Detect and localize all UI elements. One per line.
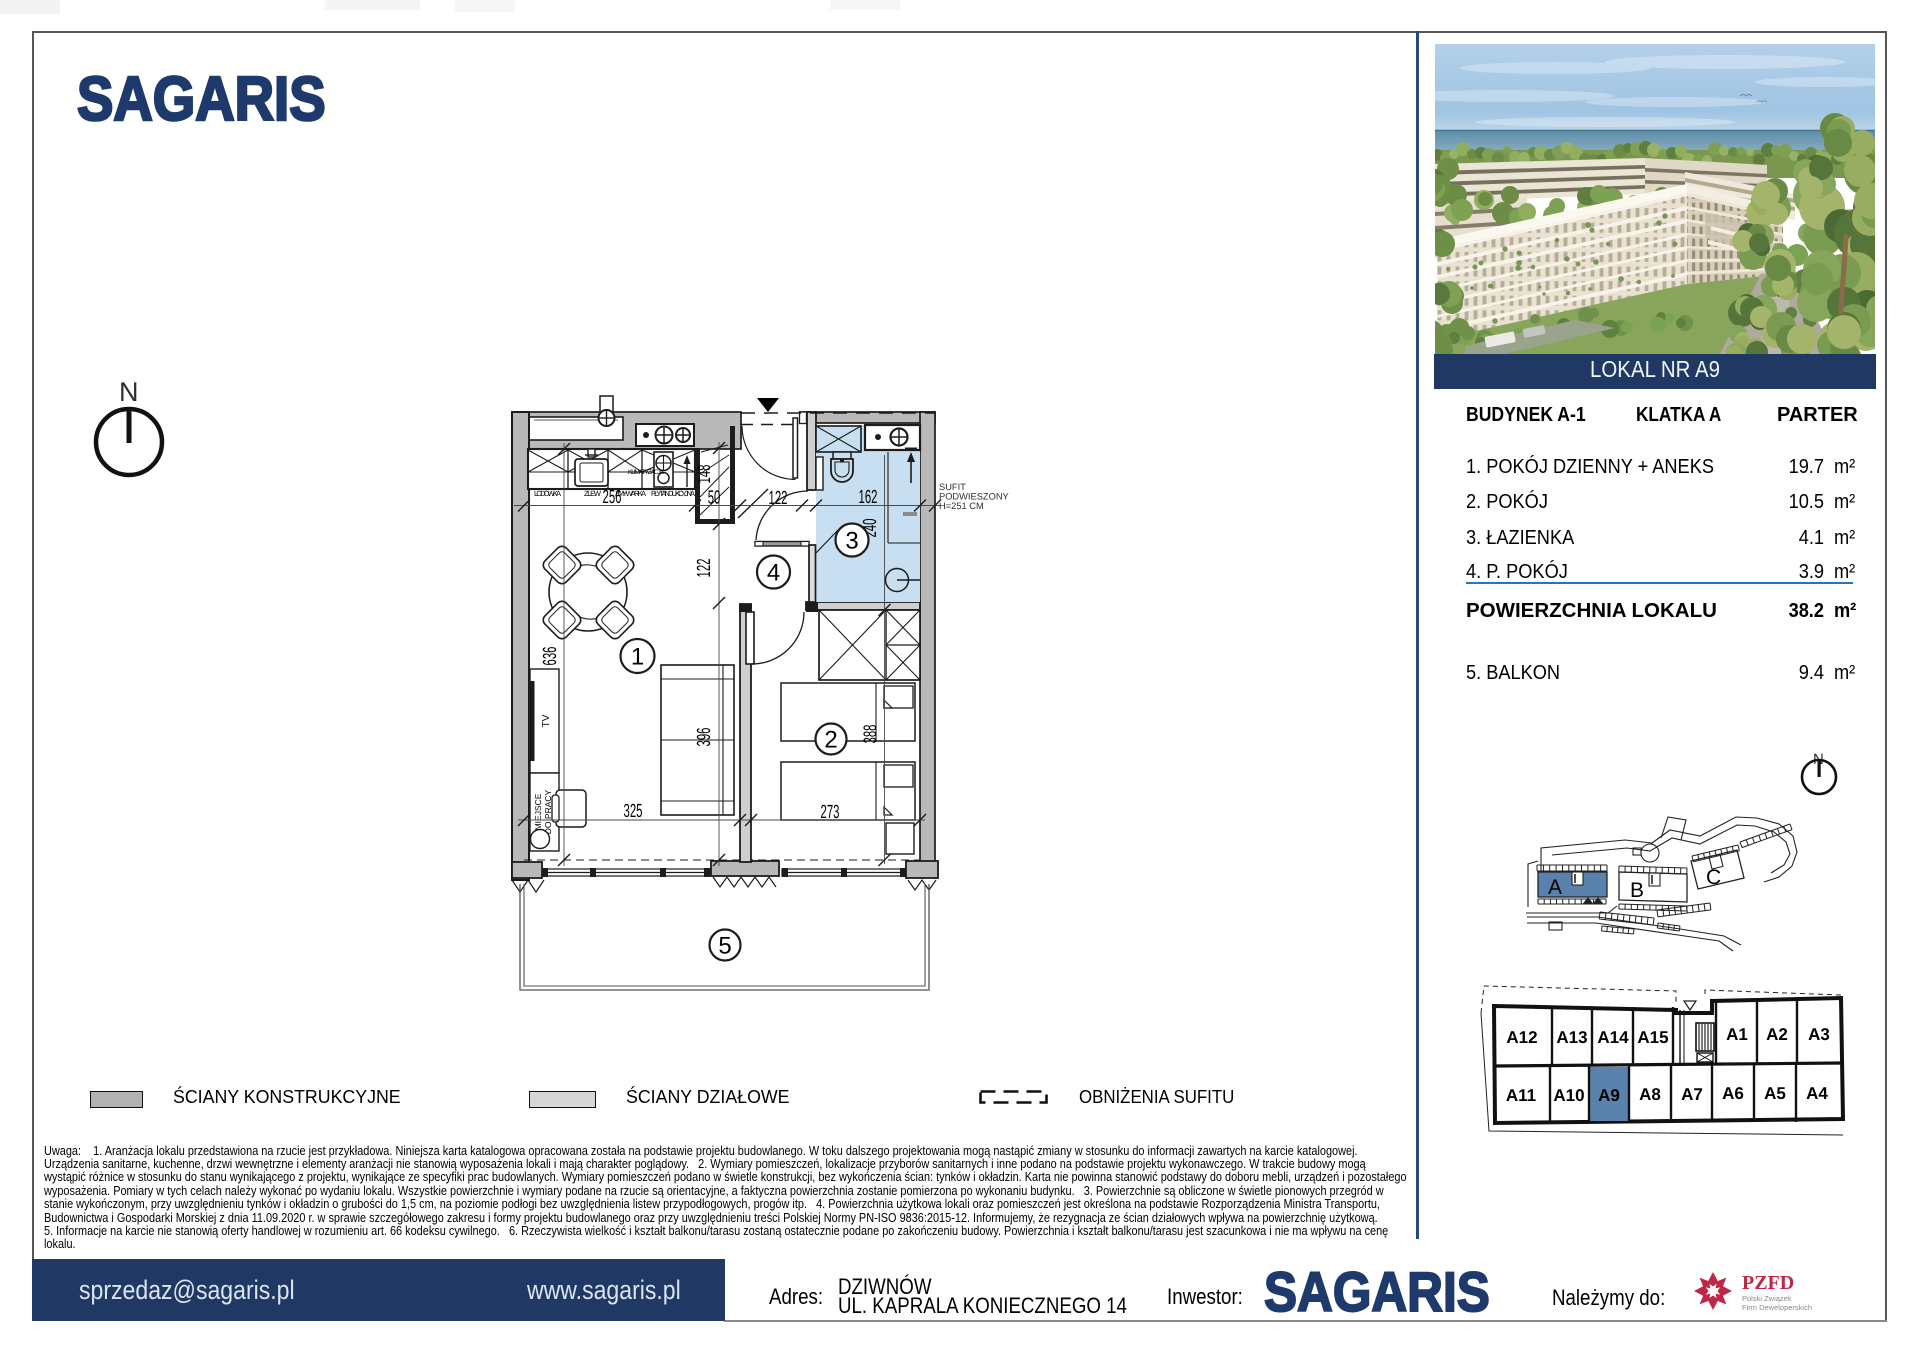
svg-text:PŁYTA INDUKCYJNA: PŁYTA INDUKCYJNA <box>651 489 695 498</box>
svg-text:TV: TV <box>541 714 552 727</box>
svg-text:396: 396 <box>694 728 715 747</box>
svg-text:A4: A4 <box>1806 1084 1828 1103</box>
svg-text:636: 636 <box>540 647 561 666</box>
svg-text:325: 325 <box>624 801 643 822</box>
svg-text:A3: A3 <box>1808 1025 1830 1044</box>
svg-text:KLIMATYZACJA: KLIMATYZACJA <box>628 469 665 476</box>
svg-text:5: 5 <box>718 933 731 960</box>
svg-text:A: A <box>1548 876 1562 899</box>
svg-text:ZLEW: ZLEW <box>584 489 602 498</box>
svg-text:H=251 CM: H=251 CM <box>939 501 984 511</box>
svg-text:A9: A9 <box>1598 1086 1620 1105</box>
svg-text:MIEJSCE: MIEJSCE <box>533 793 543 830</box>
svg-text:388: 388 <box>860 725 880 744</box>
svg-text:PODWIESZONY: PODWIESZONY <box>939 492 1009 502</box>
svg-text:162: 162 <box>859 487 878 508</box>
svg-text:N: N <box>119 377 139 407</box>
svg-text:A6: A6 <box>1722 1084 1744 1103</box>
svg-text:A2: A2 <box>1766 1025 1788 1044</box>
svg-text:A1: A1 <box>1726 1025 1748 1044</box>
svg-text:256: 256 <box>603 487 622 508</box>
svg-text:C: C <box>1706 866 1721 889</box>
svg-text:A10: A10 <box>1553 1086 1584 1105</box>
svg-text:A12: A12 <box>1506 1028 1537 1047</box>
svg-text:SUFIT: SUFIT <box>939 482 966 492</box>
svg-text:Polski Związek: Polski Związek <box>1742 1294 1792 1303</box>
svg-text:LODÓWKA: LODÓWKA <box>534 489 561 498</box>
svg-text:A13: A13 <box>1556 1028 1587 1047</box>
svg-text:3: 3 <box>845 528 858 555</box>
svg-text:PZFD: PZFD <box>1742 1272 1794 1294</box>
svg-text:A8: A8 <box>1639 1085 1661 1104</box>
svg-text:50: 50 <box>708 488 721 509</box>
svg-text:273: 273 <box>821 802 840 823</box>
svg-text:A11: A11 <box>1506 1086 1536 1105</box>
svg-text:122: 122 <box>769 488 788 509</box>
svg-text:A15: A15 <box>1637 1028 1668 1047</box>
svg-text:2: 2 <box>824 727 837 754</box>
svg-text:1: 1 <box>631 644 644 671</box>
svg-text:B: B <box>1630 879 1644 902</box>
svg-text:A7: A7 <box>1681 1085 1703 1104</box>
svg-text:148: 148 <box>694 465 714 484</box>
svg-text:4: 4 <box>767 560 780 587</box>
svg-text:A5: A5 <box>1764 1084 1786 1103</box>
svg-text:122: 122 <box>694 559 715 578</box>
svg-text:A14: A14 <box>1597 1028 1629 1047</box>
svg-text:Firm Deweloperskich: Firm Deweloperskich <box>1742 1303 1812 1312</box>
